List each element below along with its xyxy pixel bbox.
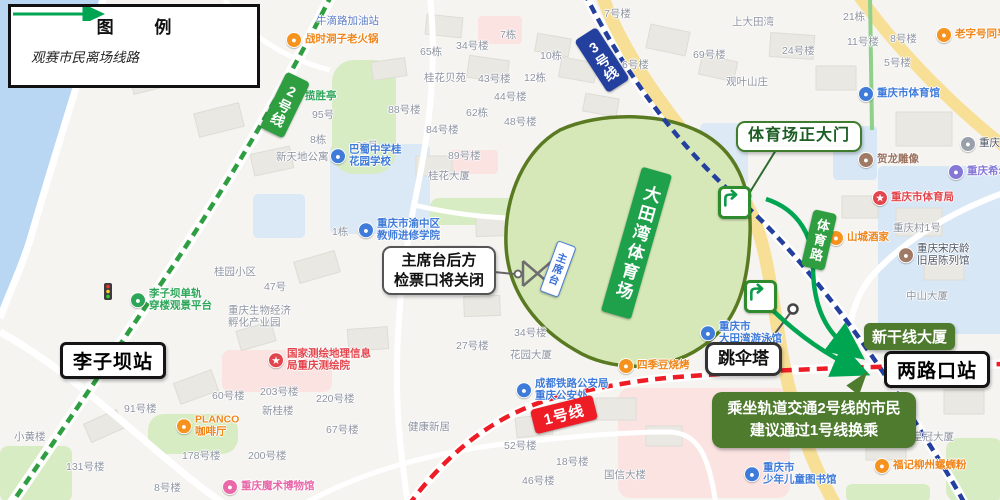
advice-line1: 乘坐轨道交通2号线的市民 <box>716 398 912 420</box>
map-canvas: 牛滴路加油站●战时洞子老火锅●揽胜亭7号楼上大田湾21栋69号楼观叶山庄10栋6… <box>0 0 1000 500</box>
gate-turn-arrow-icon <box>718 186 751 219</box>
legend-route-arrow-icon <box>11 7 111 21</box>
legend-route-label: 观赛市民离场线路 <box>31 46 139 66</box>
transfer-advice-bubble: 乘坐轨道交通2号线的市民 建议通过1号线换乘 <box>712 392 916 448</box>
advice-line2: 建议通过1号线换乘 <box>716 420 912 442</box>
main-gate-callout: 体育场正大门 <box>736 121 862 152</box>
legend-box: 图 例 观赛市民离场线路 <box>8 4 260 88</box>
parachute-tower-callout: 跳伞塔 <box>705 342 782 376</box>
station-lianglukou: 两路口站 <box>884 351 990 388</box>
closed-gate-line1: 主席台后方 <box>394 251 484 271</box>
gate-turn-arrow-icon <box>744 280 777 313</box>
closed-gate-callout: 主席台后方 检票口将关闭 <box>382 246 496 295</box>
traffic-light-icon <box>104 283 112 300</box>
closed-gate-line2: 检票口将关闭 <box>394 271 484 291</box>
shinkansen-building-label: 新干线大厦 <box>864 323 955 350</box>
station-liziba: 李子坝站 <box>60 342 166 379</box>
